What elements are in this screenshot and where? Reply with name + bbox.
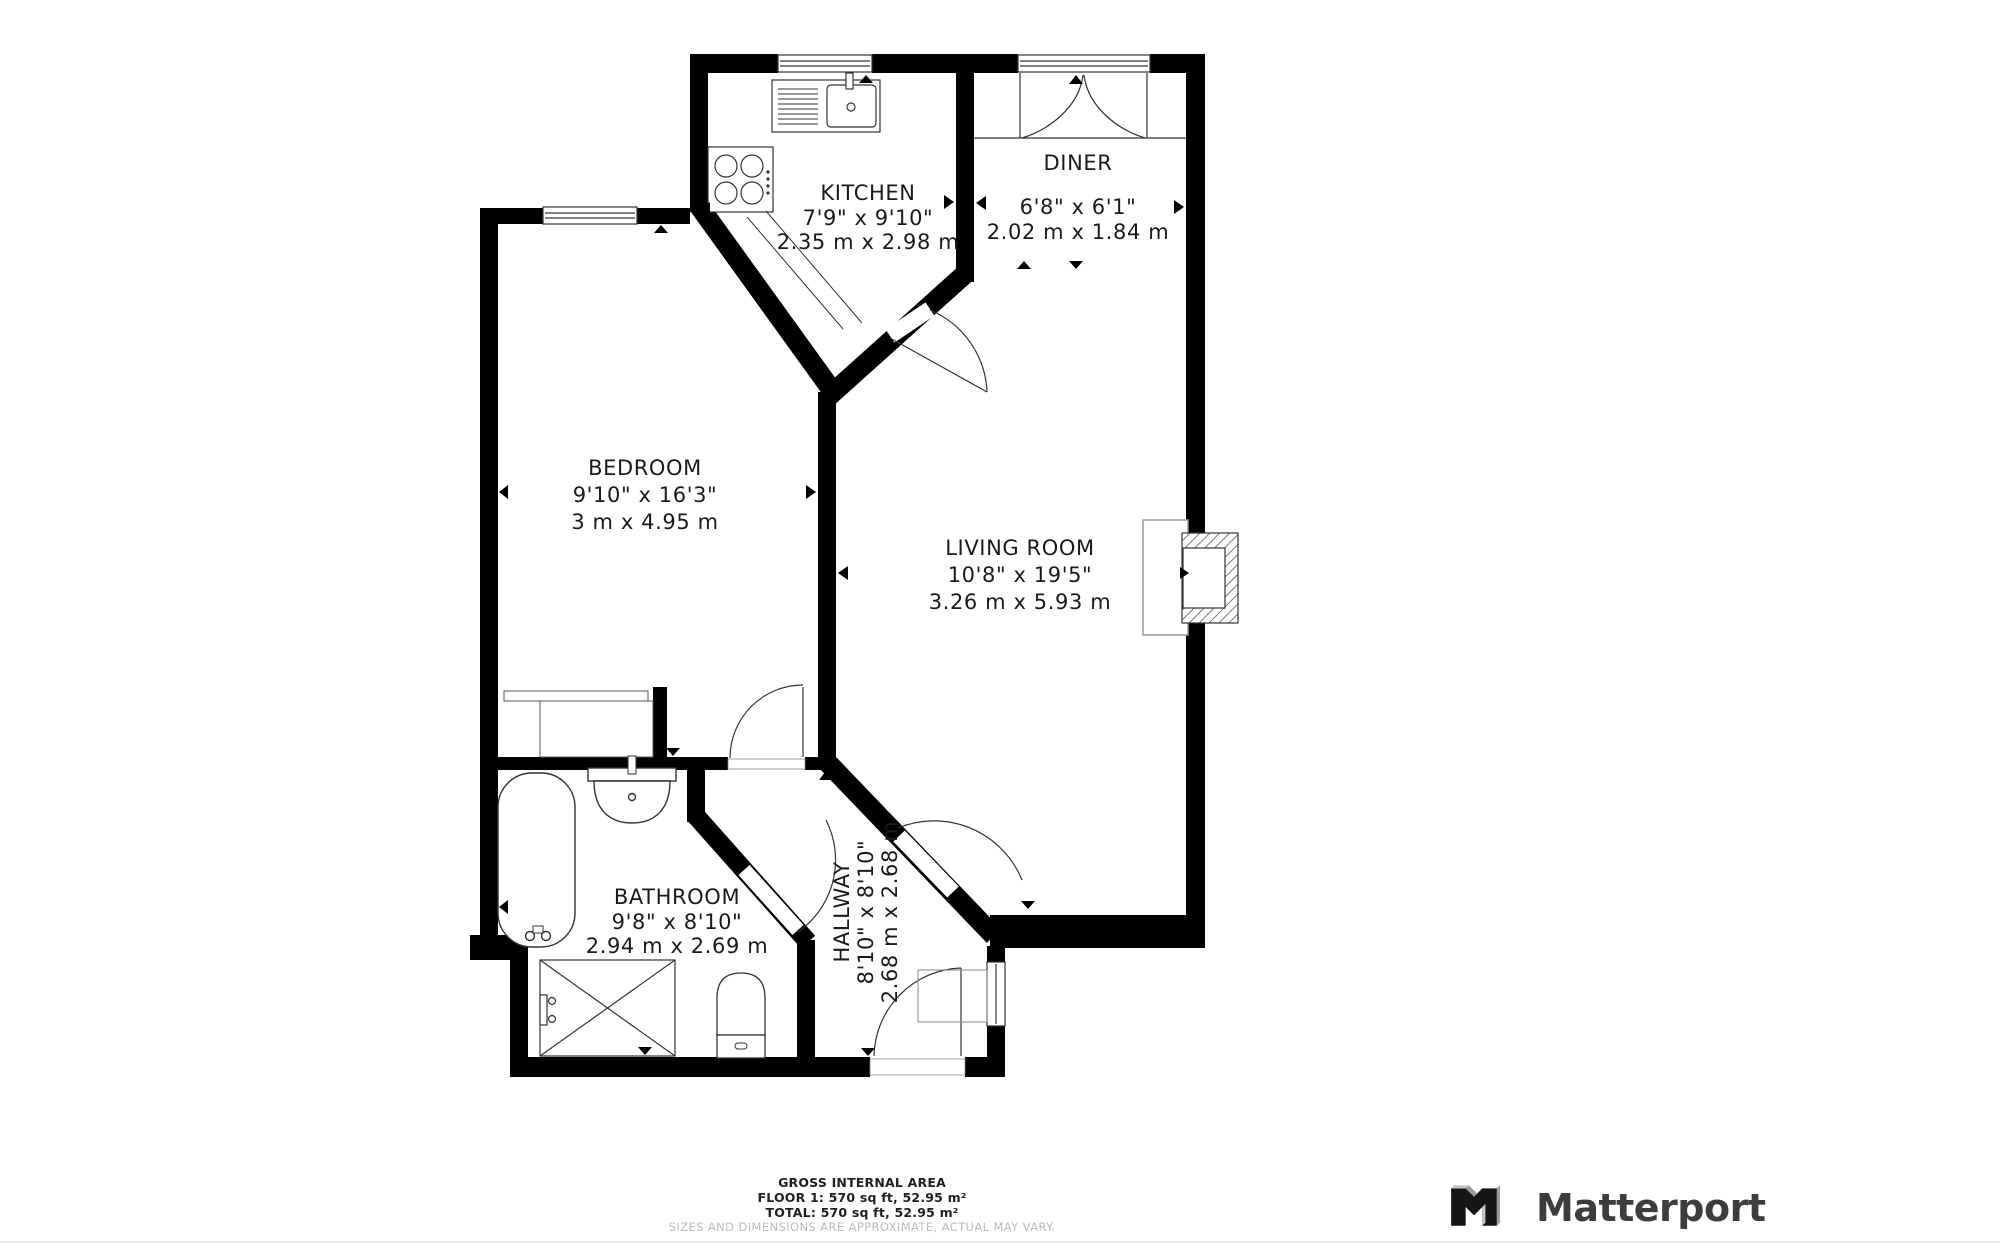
diner-window-icon (1018, 55, 1150, 72)
svg-text:6'8" x 6'1": 6'8" x 6'1" (1020, 195, 1137, 219)
marker-left-bedroom-wall (499, 485, 508, 499)
floor1-area-line: FLOOR 1: 570 sq ft, 52.95 m² (757, 1190, 966, 1205)
bathtub-icon (498, 773, 575, 947)
svg-text:2.35 m x 2.98 m: 2.35 m x 2.98 m (777, 230, 960, 254)
hallway-room-label: HALLWAY 8'10" x 8'10" 2.68 m x 2.68 m (830, 821, 902, 1004)
svg-text:9'10" x 16'3": 9'10" x 16'3" (573, 483, 718, 507)
svg-text:2.02 m x 1.84 m: 2.02 m x 1.84 m (987, 220, 1170, 244)
marker-down-living-wall (1021, 901, 1035, 909)
bedroom-shelf-icon (504, 691, 648, 701)
marker-right-kitchen-divider (944, 195, 954, 209)
shower-icon (540, 960, 675, 1056)
marker-down-diner (1069, 261, 1083, 269)
matterport-logo: Matterport (1451, 1185, 1766, 1230)
svg-text:HALLWAY: HALLWAY (830, 861, 854, 962)
svg-text:7'9" x 9'10": 7'9" x 9'10" (803, 206, 934, 230)
marker-up-diner (1017, 261, 1031, 269)
toilet-icon (717, 973, 765, 1058)
matterport-logo-text: Matterport (1536, 1186, 1766, 1230)
marker-down-front-door (861, 1048, 875, 1056)
svg-text:KITCHEN: KITCHEN (820, 181, 915, 205)
bedroom-furniture (504, 691, 653, 757)
svg-text:DINER: DINER (1044, 151, 1113, 175)
front-door-threshold (870, 1059, 965, 1075)
svg-text:10'8" x 19'5": 10'8" x 19'5" (948, 563, 1093, 587)
diner-room-label: DINER 6'8" x 6'1" 2.02 m x 1.84 m (987, 151, 1170, 244)
total-area-line: TOTAL: 570 sq ft, 52.95 m² (766, 1205, 959, 1220)
disclaimer-line: SIZES AND DIMENSIONS ARE APPROXIMATE, AC… (669, 1220, 1056, 1234)
living-room-label: LIVING ROOM 10'8" x 19'5" 3.26 m x 5.93 … (929, 536, 1112, 614)
marker-up-diner-window (1069, 75, 1083, 84)
bedroom-window-icon (543, 207, 637, 224)
front-sidelight-window-icon (987, 962, 1005, 1026)
svg-text:2.68 m x 2.68 m: 2.68 m x 2.68 m (878, 821, 902, 1004)
marker-left-living-divider (838, 566, 848, 580)
fireplace-icon (1143, 520, 1238, 635)
floor-plan-page: KITCHEN 7'9" x 9'10" 2.35 m x 2.98 m DIN… (0, 0, 2000, 1247)
hob-icon (708, 147, 773, 212)
wardrobe-icon (540, 701, 653, 757)
svg-text:2.94 m x 2.69 m: 2.94 m x 2.69 m (586, 934, 769, 958)
bedroom-door-icon (730, 685, 803, 758)
marker-up-kitchen-window (859, 75, 873, 83)
svg-text:9'8" x 8'10": 9'8" x 8'10" (612, 910, 743, 934)
svg-text:LIVING ROOM: LIVING ROOM (945, 536, 1094, 560)
marker-left-diner-divider (976, 196, 986, 210)
svg-text:3.26 m x 5.93 m: 3.26 m x 5.93 m (929, 590, 1112, 614)
floor-plan-canvas: KITCHEN 7'9" x 9'10" 2.35 m x 2.98 m DIN… (0, 0, 2000, 1247)
kitchen-room-label: KITCHEN 7'9" x 9'10" 2.35 m x 2.98 m (777, 181, 960, 254)
bathroom-room-label: BATHROOM 9'8" x 8'10" 2.94 m x 2.69 m (586, 885, 769, 958)
kitchen-window-icon (778, 55, 872, 72)
marker-down-corridor (666, 748, 680, 756)
svg-text:8'10" x 8'10": 8'10" x 8'10" (854, 840, 878, 985)
bedroom-door-threshold (728, 759, 805, 769)
svg-text:BEDROOM: BEDROOM (588, 456, 702, 480)
svg-text:3 m x 4.95 m: 3 m x 4.95 m (571, 510, 718, 534)
matterport-logo-icon (1451, 1185, 1500, 1226)
svg-text:BATHROOM: BATHROOM (614, 885, 740, 909)
marker-up-bedroom-wall (654, 225, 668, 233)
gross-internal-area-title: GROSS INTERNAL AREA (778, 1175, 946, 1190)
marker-right-bedroom-divider (806, 485, 816, 499)
bottom-divider (0, 1241, 2000, 1243)
bedroom-room-label: BEDROOM 9'10" x 16'3" 3 m x 4.95 m (571, 456, 718, 534)
marker-right-diner-wall (1174, 200, 1184, 214)
footer-area-summary: GROSS INTERNAL AREA FLOOR 1: 570 sq ft, … (669, 1175, 1056, 1234)
